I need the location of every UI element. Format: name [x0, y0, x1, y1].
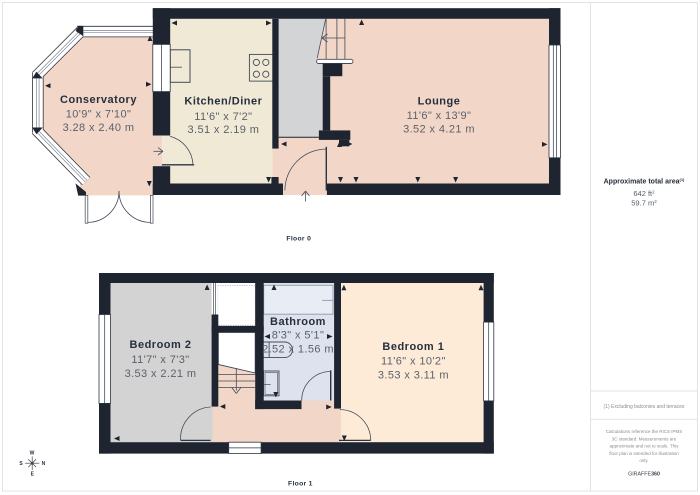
- svg-text:(1) Excluding balconies and te: (1) Excluding balconies and terraces: [604, 404, 685, 410]
- svg-text:3.52 x 4.21 m: 3.52 x 4.21 m: [403, 123, 475, 135]
- svg-text:11'6" x 7'2": 11'6" x 7'2": [194, 111, 252, 123]
- svg-text:Bathroom: Bathroom: [270, 316, 326, 328]
- svg-text:Bedroom 2: Bedroom 2: [130, 339, 192, 351]
- svg-text:3C standard. Measurements are: 3C standard. Measurements are: [612, 436, 677, 441]
- svg-text:8'3" x 5'1": 8'3" x 5'1": [272, 330, 325, 342]
- svg-text:3.28 x 2.40 m: 3.28 x 2.40 m: [63, 122, 135, 134]
- svg-text:Conservatory: Conservatory: [60, 94, 137, 106]
- svg-text:2.52 x 1.56 m: 2.52 x 1.56 m: [262, 343, 334, 355]
- svg-text:11'7" x 7'3": 11'7" x 7'3": [131, 354, 189, 366]
- svg-text:10'9" x 7'10": 10'9" x 7'10": [66, 109, 132, 121]
- svg-text:only.: only.: [639, 458, 648, 463]
- svg-text:642 ft2: 642 ft2: [633, 189, 655, 198]
- svg-text:Kitchen/Diner: Kitchen/Diner: [184, 95, 262, 107]
- svg-text:Floor 1: Floor 1: [288, 481, 313, 488]
- svg-text:Calculations reference the RIC: Calculations reference the RICS IPMS: [606, 429, 683, 434]
- svg-text:Bedroom 1: Bedroom 1: [382, 341, 444, 353]
- svg-text:W: W: [30, 451, 35, 457]
- svg-text:GIRAFFE360: GIRAFFE360: [628, 472, 660, 478]
- svg-text:floor plan is intended for ill: floor plan is intended for illustration: [609, 451, 679, 456]
- svg-text:3.51 x 2.19 m: 3.51 x 2.19 m: [187, 124, 259, 136]
- svg-text:Floor 0: Floor 0: [286, 236, 311, 243]
- svg-text:N: N: [42, 461, 46, 467]
- svg-text:Approximate total area(1): Approximate total area(1): [604, 177, 685, 186]
- svg-text:11'6" x 10'2": 11'6" x 10'2": [381, 356, 446, 368]
- svg-text:3.53 x 2.21 m: 3.53 x 2.21 m: [125, 368, 197, 380]
- svg-text:59.7 m2: 59.7 m2: [631, 199, 657, 208]
- svg-text:Lounge: Lounge: [418, 96, 461, 108]
- svg-text:11'6" x 13'9": 11'6" x 13'9": [407, 110, 472, 122]
- svg-text:3.53 x 3.11 m: 3.53 x 3.11 m: [378, 370, 449, 382]
- svg-text:approximate and not to scale.: approximate and not to scale. This: [610, 444, 679, 449]
